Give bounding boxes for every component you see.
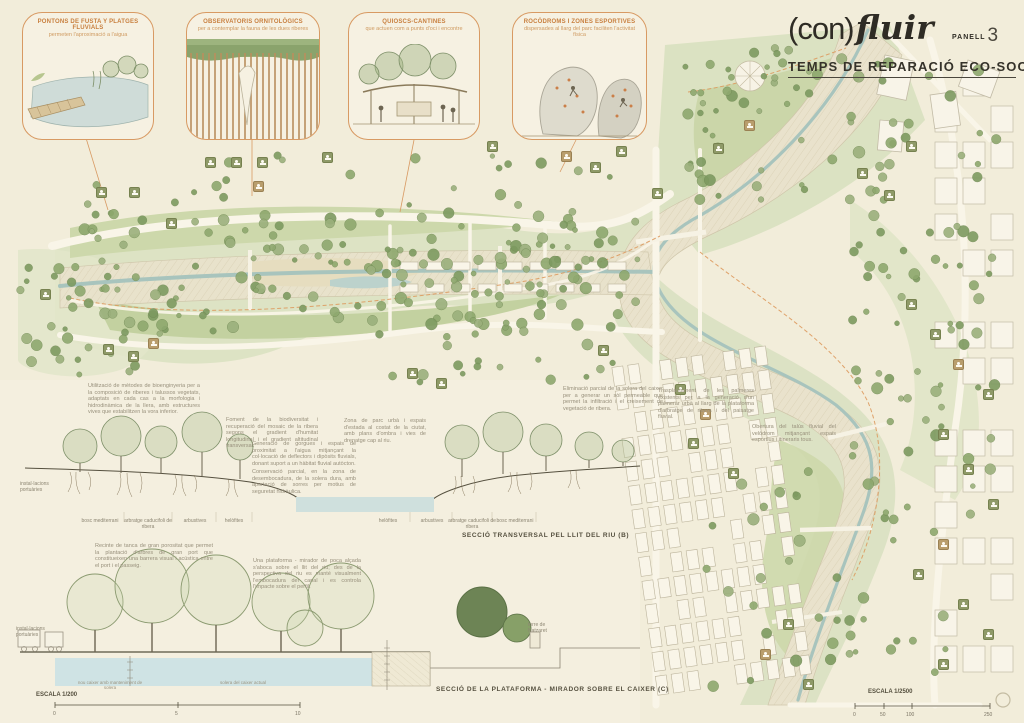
map-pictogram-icon — [913, 569, 924, 580]
map-pictogram-icon — [983, 629, 994, 640]
section-b-drawing — [25, 412, 640, 522]
planting-label: helòfites — [208, 519, 260, 525]
vignette-leader-lines — [86, 138, 576, 212]
map-pictogram-icon — [407, 368, 418, 379]
map-pictogram-icon — [590, 162, 601, 173]
map-pictogram-icon — [40, 289, 51, 300]
city-blocks — [400, 55, 1013, 695]
annotation: Conservació parcial, en la zona de desem… — [252, 469, 356, 495]
vignette-pontoons: PONTONS DE FUSTA Y PLATGES FLUVIALS perm… — [22, 12, 154, 140]
map-pictogram-icon — [983, 389, 994, 400]
vignette-title: ROCÒDROMS I ZONES ESPORTIVES — [519, 19, 640, 25]
map-pictogram-icon — [783, 619, 794, 630]
annotation: Obertura del talús fluvial del velòdrom … — [752, 424, 836, 444]
panel-number: 3 — [988, 25, 999, 46]
map-pictogram-icon — [938, 659, 949, 670]
svg-text:10: 10 — [295, 711, 301, 717]
vignette-title: OBSERVATORIS ORNITOLÒGICS — [193, 19, 313, 25]
map-pictogram-icon — [803, 679, 814, 690]
map-pictogram-icon — [938, 429, 949, 440]
circular-plaza — [735, 61, 765, 91]
map-pictogram-icon — [760, 649, 771, 660]
map-pictogram-icon — [128, 351, 139, 362]
map-pictogram-icon — [253, 181, 264, 192]
annotation: Utilització de mètodes de bioenginyeria … — [88, 383, 200, 416]
map-pictogram-icon — [257, 157, 268, 168]
map-pictogram-icon — [884, 190, 895, 201]
scalebar-plan: 0 50 100 250 — [853, 703, 993, 718]
section-b-title: SECCIÓ TRANSVERSAL PEL LLIT DEL RIU (B) — [462, 532, 629, 539]
svg-text:250: 250 — [984, 712, 993, 718]
map-pictogram-icon — [487, 141, 498, 152]
map-pictogram-icon — [96, 187, 107, 198]
map-pictogram-icon — [103, 344, 114, 355]
map-pictogram-icon — [436, 378, 447, 389]
panel-subtitle: TEMPS DE REPARACIÓ ECO-SOCIAL — [788, 59, 1016, 78]
section-c-right-label: torre de Natzaret — [528, 622, 562, 634]
vignette-subtitle: per a contemplar la fauna de les dues ri… — [193, 26, 313, 32]
annotation: Zona de parc urbà i espais d'estada al c… — [344, 418, 426, 444]
map-pictogram-icon — [953, 359, 964, 370]
map-pictogram-icon — [652, 188, 663, 199]
vignette-observatory: OBSERVATORIS ORNITOLÒGICS per a contempl… — [186, 12, 320, 140]
map-pictogram-icon — [713, 143, 724, 154]
map-pictogram-icon — [561, 151, 572, 162]
vignette-kiosk: QUIOSCS-CANTINES que actuen com a punts … — [348, 12, 480, 140]
map-pictogram-icon — [688, 438, 699, 449]
brand-prefix: (con) — [788, 11, 854, 46]
section-b-edge-label: instal·lacions portuàries — [20, 481, 62, 493]
scale-plan-label: ESCALA 1/2500 — [868, 689, 912, 695]
map-pictogram-icon — [322, 152, 333, 163]
river-pond — [330, 276, 412, 288]
annotation: Una plataforma - mirador de poca alçada … — [253, 558, 361, 591]
vignette-title: QUIOSCS-CANTINES — [355, 19, 473, 25]
map-pictogram-icon — [857, 168, 868, 179]
scalebar-section: 0 5 10 — [53, 702, 301, 717]
annotation: Generació de gorgues i espais de proximi… — [252, 441, 356, 467]
panel-sheet: 0 5 10 0 50 100 250 (con)fluir PANELL3 T… — [0, 0, 1024, 723]
park-ground — [18, 25, 979, 705]
lookout-window — [239, 66, 255, 125]
project-logo: (con)fluir PANELL3 — [788, 8, 1016, 58]
map-pictogram-icon — [930, 329, 941, 340]
scale-note-left: nou caixer amb manteniment de solera — [76, 680, 144, 690]
map-pictogram-icon — [231, 157, 242, 168]
section-c-edge-label: instal·lacions portuàries — [16, 626, 58, 638]
map-pictogram-icon — [598, 345, 609, 356]
section-c-title: SECCIÓ DE LA PLATAFORMA - MIRADOR SOBRE … — [436, 686, 669, 693]
map-pictogram-icon — [205, 157, 216, 168]
kiosk-illustration — [349, 44, 479, 139]
planting-label: bosc mediterrani — [489, 519, 541, 525]
map-pictogram-icon — [906, 141, 917, 152]
dense-tree — [457, 587, 507, 637]
map-pictogram-icon — [906, 299, 917, 310]
map-pictogram-icon — [938, 539, 949, 550]
planting-label: bosc mediterrani — [74, 519, 126, 525]
annotation: Eliminació parcial de la solera del caix… — [563, 386, 663, 412]
planting-label: arbratge caducifoli de ribera — [122, 519, 174, 530]
map-pictogram-icon — [988, 499, 999, 510]
title-block: (con)fluir PANELL3 TEMPS DE REPARACIÓ EC… — [788, 8, 1016, 78]
observatory-illustration — [187, 39, 319, 139]
svg-text:0: 0 — [53, 711, 56, 717]
map-pictogram-icon — [958, 599, 969, 610]
map-pictogram-icon — [744, 120, 755, 131]
vignette-title: PONTONS DE FUSTA Y PLATGES FLUVIALS — [29, 19, 147, 31]
brand-name: fluir — [856, 8, 934, 47]
map-pictogram-icon — [728, 468, 739, 479]
svg-text:0: 0 — [853, 712, 856, 718]
map-pictogram-icon — [148, 338, 159, 349]
tree-canopy — [17, 44, 1001, 691]
scale-section-label: ESCALA 1/200 — [36, 692, 77, 698]
annotation: Recinte de tanca de gran porositat que p… — [95, 543, 213, 569]
vignette-subtitle: dispersades al llarg del parc faciliten … — [519, 26, 640, 38]
scale-note-right: solera del caixer actual — [208, 680, 278, 685]
vignette-climbing: ROCÒDROMS I ZONES ESPORTIVES dispersades… — [512, 12, 647, 140]
roundabout — [996, 693, 1010, 707]
map-pictogram-icon — [166, 218, 177, 229]
svg-text:100: 100 — [906, 712, 915, 718]
svg-text:50: 50 — [880, 712, 886, 718]
annotation: Trasplantament de les palmeres existents… — [658, 388, 754, 421]
climbing-illustration — [513, 44, 646, 139]
vignette-subtitle: permeten l'aproximació a l'aigua — [29, 32, 147, 38]
pontoon-illustration — [23, 47, 153, 139]
svg-text:5: 5 — [175, 711, 178, 717]
map-pictogram-icon — [616, 146, 627, 157]
map-pictogram-icon — [963, 464, 974, 475]
map-pictogram-icon — [129, 187, 140, 198]
vignette-subtitle: que actuen com a punts d'oci i encontre — [355, 26, 473, 32]
panel-label: PANELL — [952, 34, 985, 41]
